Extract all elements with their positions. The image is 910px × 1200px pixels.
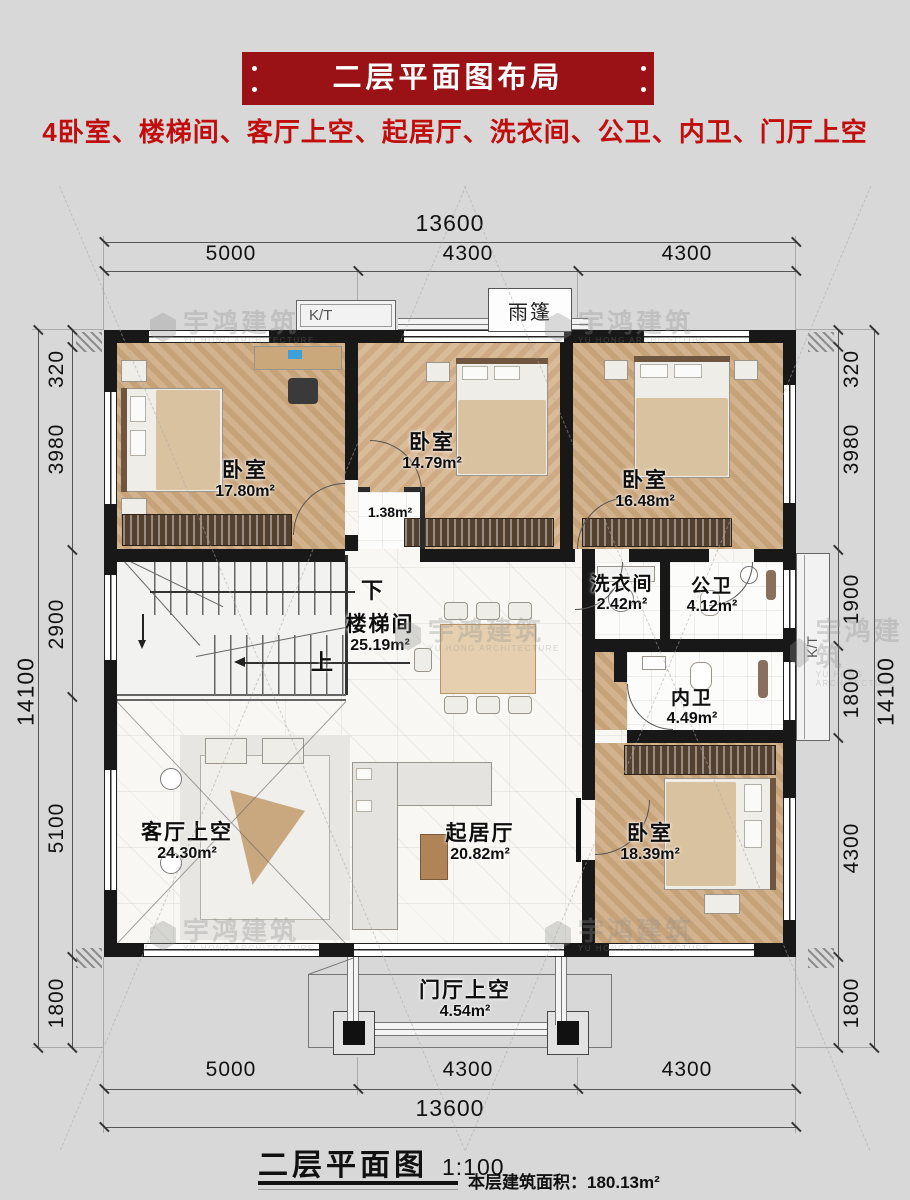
coffee-table bbox=[420, 834, 448, 880]
window bbox=[104, 770, 117, 890]
dim-top-total: 13600 bbox=[350, 210, 550, 237]
wall bbox=[614, 652, 627, 682]
side-table bbox=[160, 768, 182, 790]
wall bbox=[345, 535, 358, 551]
wardrobe bbox=[122, 514, 292, 546]
wall bbox=[754, 549, 792, 562]
dining-chair bbox=[414, 648, 432, 672]
dim-left-seg-4: 5100 bbox=[45, 773, 69, 883]
void-railing bbox=[117, 699, 346, 701]
nightstand bbox=[426, 362, 450, 382]
kt-label: K/T bbox=[309, 307, 332, 324]
bed-blanket bbox=[458, 400, 546, 474]
nightstand bbox=[734, 360, 758, 380]
wall bbox=[582, 639, 796, 652]
laptop bbox=[288, 350, 302, 359]
dim-right-seg-5: 4300 bbox=[840, 793, 864, 903]
shower-fixture bbox=[758, 660, 768, 698]
bed-headboard bbox=[634, 356, 730, 362]
dim-line bbox=[72, 330, 73, 1048]
dining-chair bbox=[444, 602, 468, 620]
window bbox=[609, 943, 754, 957]
rain-canopy-box: 雨篷 bbox=[488, 288, 572, 332]
bed-pillow bbox=[744, 820, 762, 848]
wall-section-hatch bbox=[808, 948, 834, 968]
wall bbox=[420, 492, 425, 549]
dim-right-seg-6: 1800 bbox=[840, 948, 864, 1058]
dim-right-total: 14100 bbox=[873, 637, 900, 747]
dining-chair bbox=[508, 696, 532, 714]
bed-pillow bbox=[744, 784, 762, 812]
sofa-pillow bbox=[356, 800, 372, 812]
wall bbox=[358, 487, 370, 492]
extension-line bbox=[103, 957, 104, 1133]
banner-dot bbox=[641, 87, 646, 92]
porch-side-glazing bbox=[555, 957, 567, 1025]
bed-headboard bbox=[121, 388, 127, 492]
window bbox=[104, 575, 117, 660]
dining-table bbox=[440, 624, 536, 694]
bed-headboard bbox=[456, 358, 548, 364]
nightstand bbox=[604, 360, 628, 380]
wall-section-hatch bbox=[808, 332, 834, 352]
window bbox=[149, 330, 269, 343]
stair-treads-upper bbox=[154, 555, 346, 615]
wall bbox=[345, 330, 358, 480]
room-label-stairwell: 楼梯间 25.19m² bbox=[346, 613, 415, 655]
stair-up-arrow bbox=[234, 657, 245, 667]
sofa bbox=[352, 762, 398, 930]
wall bbox=[629, 549, 709, 562]
room-label-bedroom-2: 卧室 14.79m² bbox=[402, 431, 462, 473]
bed-pillow bbox=[130, 396, 146, 422]
banner-dot bbox=[641, 66, 646, 71]
nightstand bbox=[704, 894, 740, 914]
floor-plan-poster: 二层平面图布局 4卧室、楼梯间、客厅上空、起居厅、洗衣间、公卫、内卫、门厅上空 bbox=[0, 0, 910, 1200]
bed-pillow bbox=[640, 364, 668, 378]
kitchen-terrace-box: K/T bbox=[296, 300, 396, 331]
room-label-laundry: 洗衣间 2.42m² bbox=[590, 574, 653, 614]
dim-bottom-total: 13600 bbox=[350, 1095, 550, 1122]
bed-headboard bbox=[770, 778, 776, 890]
wardrobe bbox=[404, 518, 554, 547]
shower-fixture bbox=[766, 570, 776, 600]
porch-rail-glazing bbox=[375, 1022, 547, 1036]
stairs-down-label: 下 bbox=[361, 573, 383, 605]
room-label-bedroom-3: 卧室 16.48m² bbox=[615, 469, 675, 511]
room-label-public-bath: 公卫 4.12m² bbox=[687, 576, 738, 616]
window bbox=[783, 798, 796, 920]
window bbox=[783, 570, 796, 628]
tv bbox=[576, 798, 581, 862]
extension-line bbox=[795, 957, 796, 1133]
wall-section-hatch bbox=[76, 332, 102, 352]
bed-pillow bbox=[462, 366, 488, 380]
stair-down-stem bbox=[142, 614, 144, 642]
void-railing bbox=[117, 694, 346, 696]
extension-line bbox=[103, 236, 104, 330]
kt-label: K/T bbox=[804, 592, 826, 702]
stairs-up-label: 上 bbox=[311, 645, 333, 677]
dim-right-seg-2: 3980 bbox=[840, 394, 864, 504]
dim-right-seg-4: 1800 bbox=[840, 638, 864, 748]
window bbox=[783, 385, 796, 503]
dim-left-seg-5: 1800 bbox=[45, 948, 69, 1058]
title-underline bbox=[258, 1181, 458, 1185]
window bbox=[104, 392, 117, 504]
nightstand bbox=[121, 360, 147, 382]
stair-down-line bbox=[150, 591, 355, 593]
dim-top-seg-1: 5000 bbox=[151, 242, 311, 266]
dim-left-seg-2: 3980 bbox=[45, 394, 69, 504]
rain-canopy-label: 雨篷 bbox=[508, 296, 552, 325]
dim-line bbox=[104, 271, 796, 272]
drawing-title: 二层平面图 bbox=[258, 1149, 428, 1182]
dim-top-seg-3: 4300 bbox=[607, 242, 767, 266]
banner-dot bbox=[252, 66, 257, 71]
ottoman bbox=[205, 738, 247, 764]
sink bbox=[642, 656, 666, 670]
room-label-bedroom-4: 卧室 18.39m² bbox=[620, 822, 680, 864]
toilet bbox=[690, 662, 712, 690]
bed-pillow bbox=[674, 364, 702, 378]
dim-left-total: 14100 bbox=[13, 637, 40, 747]
floor-area-note: 本层建筑面积：180.13m² bbox=[468, 1168, 660, 1193]
wall-section-hatch bbox=[76, 948, 102, 968]
bed-blanket bbox=[156, 390, 220, 490]
room-label-sitting-room: 起居厅 20.82m² bbox=[446, 822, 515, 864]
page-title: 二层平面图布局 bbox=[332, 62, 563, 94]
dining-chair bbox=[508, 602, 532, 620]
banner-dot bbox=[252, 87, 257, 92]
dining-chair bbox=[476, 602, 500, 620]
room-label-bedroom-1: 卧室 17.80m² bbox=[215, 459, 275, 501]
sofa-pillow bbox=[356, 768, 372, 780]
dim-bottom-seg-3: 4300 bbox=[607, 1058, 767, 1082]
dim-bottom-seg-2: 4300 bbox=[388, 1058, 548, 1082]
dim-bottom-seg-1: 5000 bbox=[151, 1058, 311, 1082]
extension-line bbox=[795, 236, 796, 330]
room-label-foyer-void: 门厅上空 4.54m² bbox=[419, 979, 511, 1021]
wall bbox=[420, 549, 575, 562]
window bbox=[144, 943, 319, 957]
room-label-living-void: 客厅上空 24.30m² bbox=[141, 821, 233, 863]
dim-line bbox=[104, 1089, 796, 1090]
dining-chair bbox=[444, 696, 468, 714]
bed-blanket bbox=[636, 398, 728, 476]
dim-left-seg-3: 2900 bbox=[45, 569, 69, 679]
page-title-banner: 二层平面图布局 bbox=[242, 52, 654, 105]
room-label-private-bath: 内卫 4.49m² bbox=[667, 688, 718, 728]
dim-top-seg-2: 4300 bbox=[388, 242, 548, 266]
room-label-vestibule: 1.38m² bbox=[368, 504, 412, 520]
title-underline-thin bbox=[258, 1189, 458, 1190]
porch-side-glazing bbox=[347, 957, 359, 1025]
dining-chair bbox=[476, 696, 500, 714]
desk-chair bbox=[288, 378, 318, 404]
room-list-subtitle: 4卧室、楼梯间、客厅上空、起居厅、洗衣间、公卫、内卫、门厅上空 bbox=[0, 112, 910, 149]
window bbox=[783, 662, 796, 720]
window bbox=[644, 330, 749, 343]
wall bbox=[117, 549, 345, 562]
stair-down-arrow bbox=[138, 640, 146, 649]
bed-pillow bbox=[130, 430, 146, 456]
wall bbox=[660, 562, 670, 639]
wall bbox=[560, 330, 573, 549]
dim-line bbox=[104, 1127, 796, 1128]
dim-line bbox=[838, 330, 839, 1048]
porch-column-core bbox=[557, 1021, 579, 1045]
window bbox=[354, 943, 564, 957]
wall bbox=[582, 860, 595, 956]
wall bbox=[627, 730, 796, 743]
porch-column-core bbox=[343, 1021, 365, 1045]
bed-pillow bbox=[494, 366, 520, 380]
wardrobe bbox=[624, 745, 776, 775]
